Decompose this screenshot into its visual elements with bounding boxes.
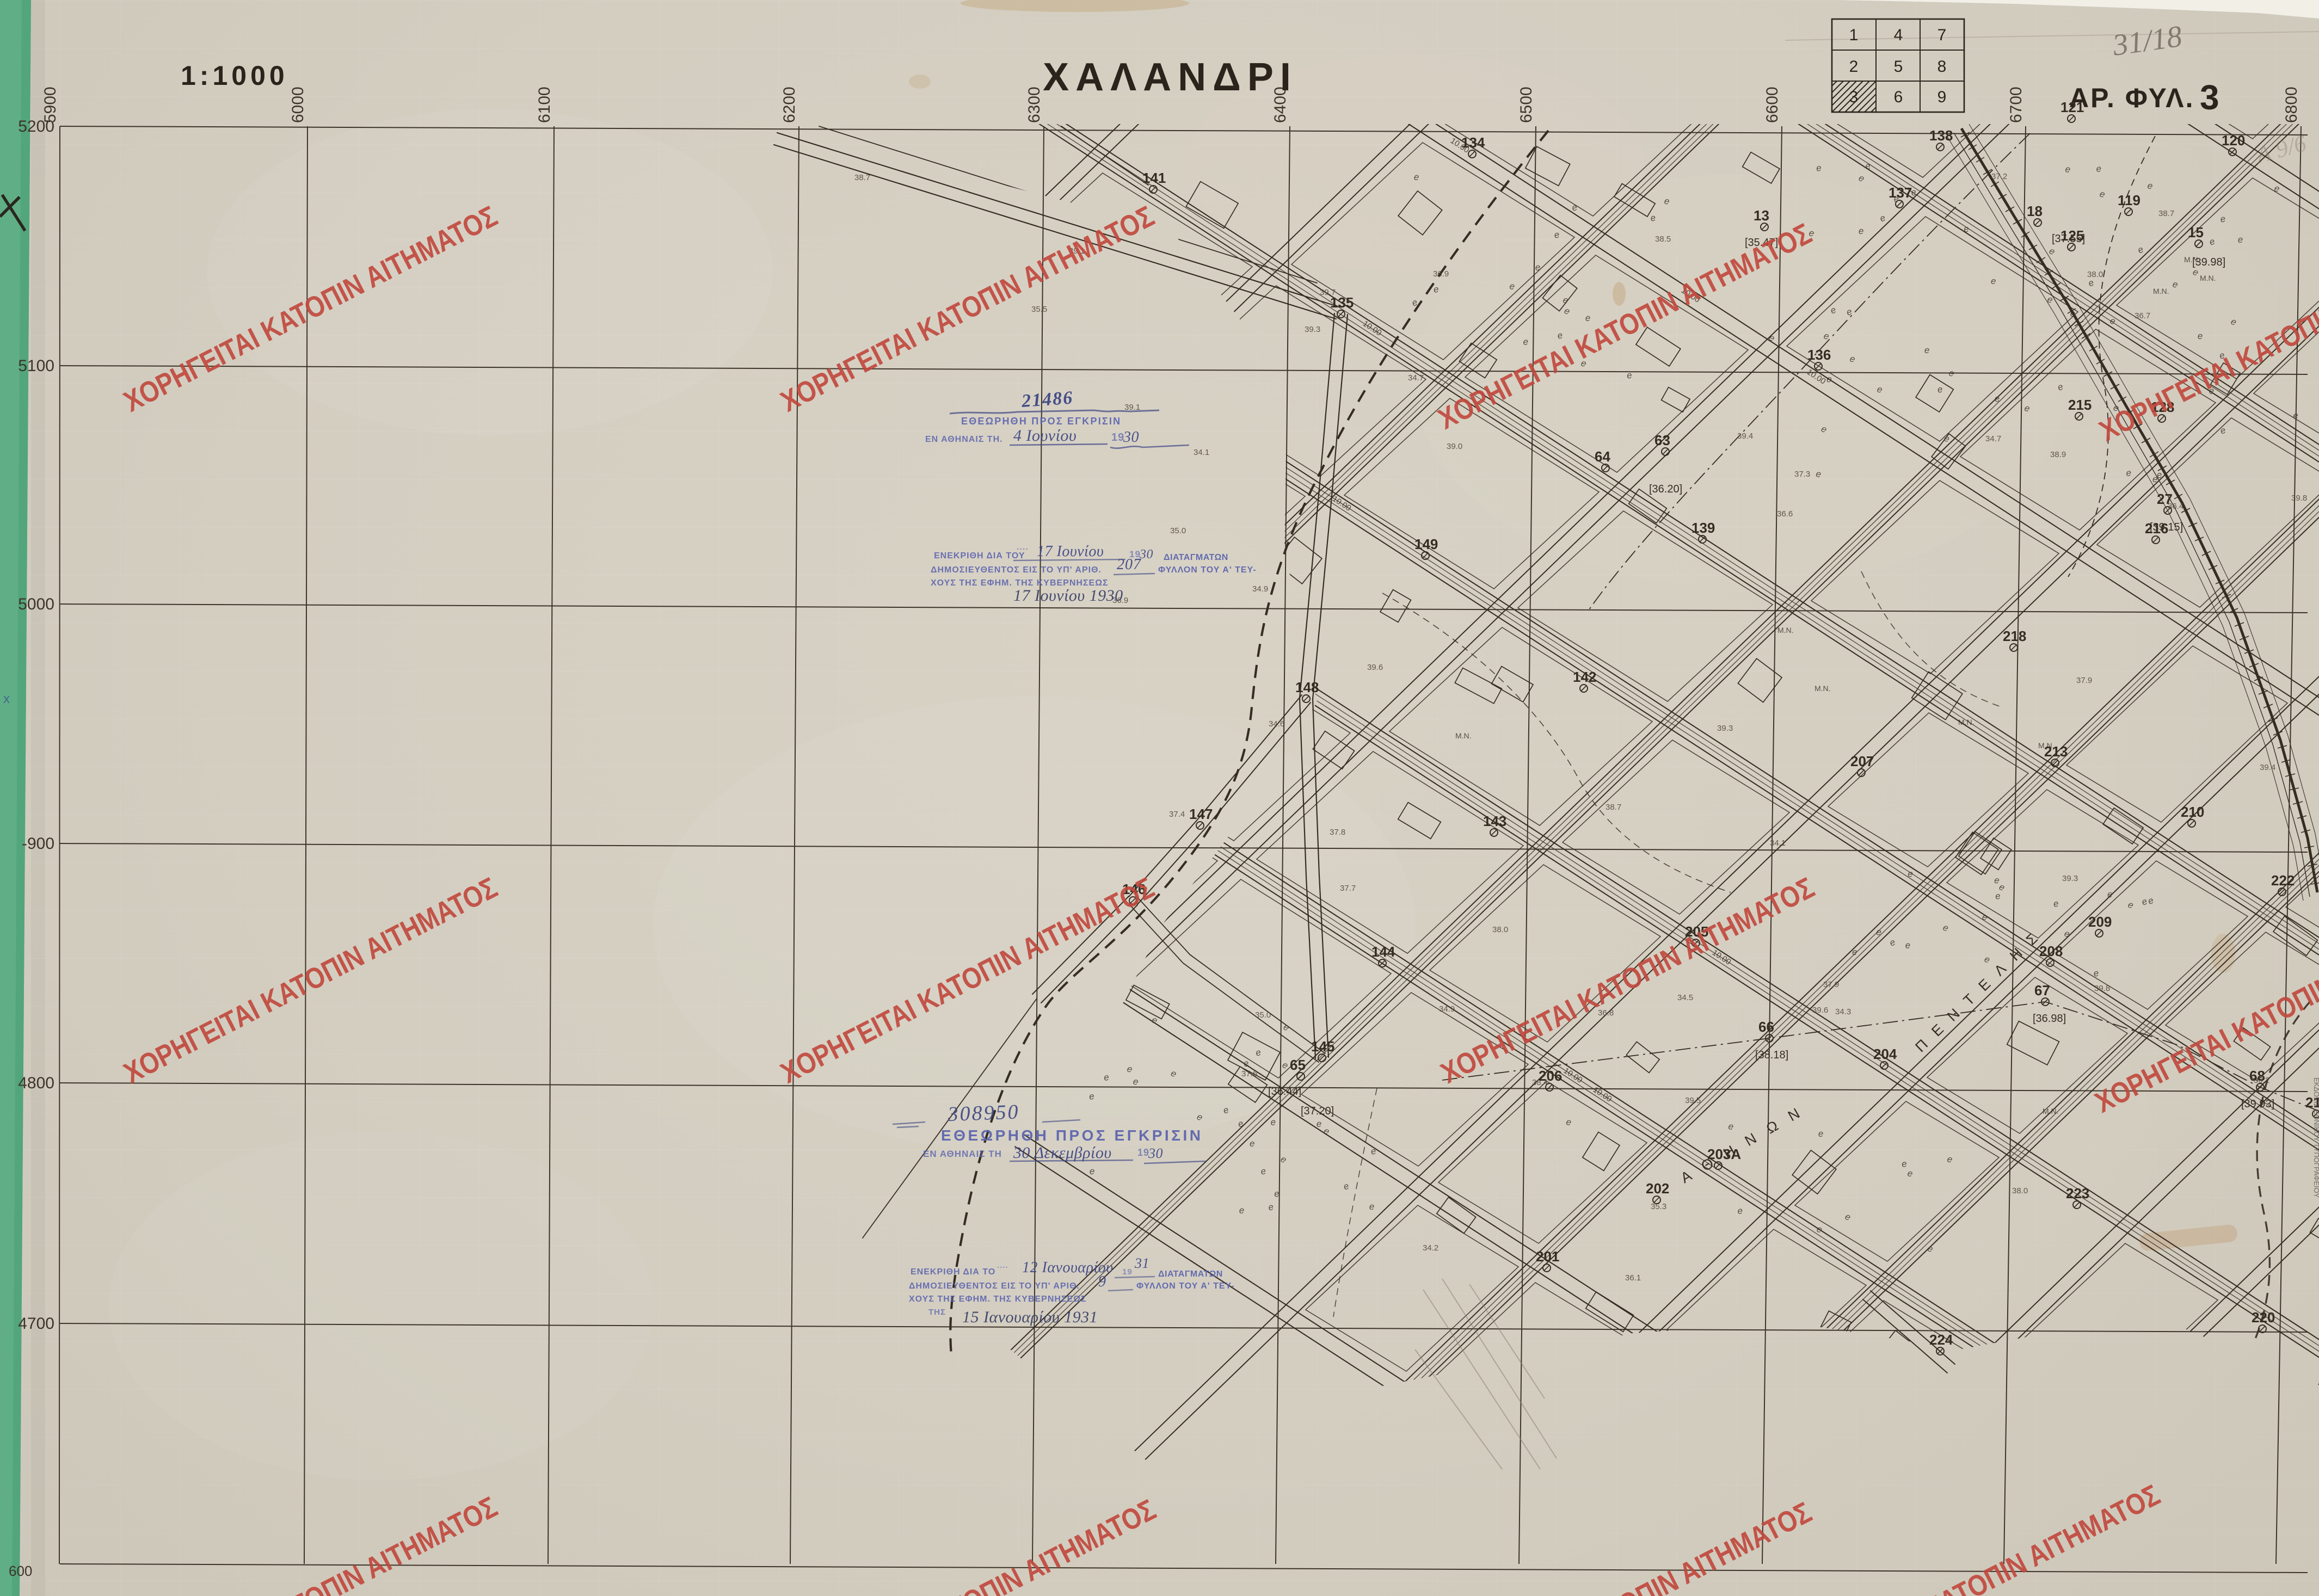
svg-text:[37.55]: [37.55] <box>2052 233 2085 245</box>
svg-text:e: e <box>1342 1181 1351 1192</box>
svg-text:37.9: 37.9 <box>2076 676 2092 685</box>
svg-text:39.3: 39.3 <box>1305 325 1320 334</box>
svg-text:e: e <box>1876 927 1882 938</box>
svg-text:8: 8 <box>1937 58 1947 76</box>
svg-text:ΧΟΡΗΓΕΙΤΑΙ ΚΑΤΟΠΙΝ ΑΙΤΗΜΑΤΟΣ: ΧΟΡΗΓΕΙΤΑΙ ΚΑΤΟΠΙΝ ΑΙΤΗΜΑΤΟΣ <box>777 1493 1161 1596</box>
svg-text:ΧΟΥΣ ΤΗΣ ΕΦΗΜ. ΤΗΣ ΚΥΒΕΡΝΗΣΕΩΣ: ΧΟΥΣ ΤΗΣ ΕΦΗΜ. ΤΗΣ ΚΥΒΕΡΝΗΣΕΩΣ <box>909 1295 1087 1304</box>
svg-text:38.0: 38.0 <box>1492 925 1508 934</box>
svg-text:e: e <box>1267 1201 1275 1213</box>
svg-text:17 Ιουνίου: 17 Ιουνίου <box>1037 543 1104 560</box>
svg-text:e: e <box>2063 928 2071 940</box>
svg-text:15 Ιανουαρίου 1931: 15 Ιανουαρίου 1931 <box>962 1308 1098 1326</box>
svg-text:67: 67 <box>2034 982 2050 999</box>
svg-text:e: e <box>2127 899 2135 911</box>
svg-text:39.8: 39.8 <box>2094 984 2110 993</box>
svg-text:38.0: 38.0 <box>2087 270 2103 279</box>
svg-text:ΕΝΕΚΡΙΘΗ ΔΙΑ ΤΟ: ΕΝΕΚΡΙΘΗ ΔΙΑ ΤΟ <box>911 1267 995 1277</box>
svg-text:120: 120 <box>2222 132 2245 149</box>
svg-text:34.7: 34.7 <box>1408 373 1424 383</box>
svg-text:e: e <box>2219 425 2228 436</box>
svg-text:e: e <box>2172 279 2179 290</box>
svg-text:e: e <box>2136 244 2145 255</box>
svg-text:M.N.: M.N. <box>2043 1107 2059 1116</box>
svg-text:19: 19 <box>1111 432 1124 443</box>
svg-text:ΧΑΛΑΝΔΡΙ: ΧΑΛΑΝΔΡΙ <box>1043 56 1297 99</box>
svg-text:6: 6 <box>1894 88 1903 106</box>
svg-text:19: 19 <box>1137 1147 1149 1158</box>
svg-text:M.N.: M.N. <box>1777 626 1794 634</box>
svg-text:63: 63 <box>1654 432 1670 448</box>
svg-text:34.1: 34.1 <box>1194 448 1209 457</box>
svg-text:38.7: 38.7 <box>2158 209 2174 218</box>
svg-text:[39.93]: [39.93] <box>2241 1098 2274 1110</box>
svg-text:138: 138 <box>1929 127 1953 144</box>
svg-text:39.3: 39.3 <box>2062 874 2078 883</box>
svg-text:34.9: 34.9 <box>1439 1005 1455 1014</box>
svg-text:e: e <box>1413 172 1419 182</box>
svg-text:121: 121 <box>2060 99 2084 115</box>
svg-text:e: e <box>2292 410 2299 421</box>
svg-text:e: e <box>1737 1205 1743 1216</box>
svg-text:34.1: 34.1 <box>1770 839 1786 848</box>
svg-text:21486: 21486 <box>1020 387 1074 411</box>
svg-text:36.7: 36.7 <box>2135 311 2150 321</box>
svg-text:ΦΥΛΛΟΝ ΤΟΥ Α' ΤΕΥ-: ΦΥΛΛΟΝ ΤΟΥ Α' ΤΕΥ- <box>1136 1281 1235 1291</box>
svg-text:M.N.: M.N. <box>1958 718 1974 726</box>
svg-text:ΦΥΛΛΟΝ ΤΟΥ Α' ΤΕΥ-: ΦΥΛΛΟΝ ΤΟΥ Α' ΤΕΥ- <box>1158 565 1257 575</box>
svg-text:e: e <box>2237 235 2243 245</box>
svg-text:38.5: 38.5 <box>1655 235 1671 244</box>
svg-text:218: 218 <box>2003 628 2026 644</box>
svg-text:31: 31 <box>1134 1255 1149 1271</box>
svg-text:e: e <box>1995 891 2001 902</box>
svg-text:149: 149 <box>1414 536 1438 552</box>
svg-text:[38.18]: [38.18] <box>1755 1049 1788 1061</box>
svg-text:39.5: 39.5 <box>1685 1096 1701 1105</box>
svg-text:64: 64 <box>1595 448 1610 465</box>
svg-text:143: 143 <box>1483 813 1506 829</box>
svg-text:36.1: 36.1 <box>1625 1273 1641 1283</box>
svg-text:x: x <box>3 692 10 706</box>
svg-text:119: 119 <box>2118 192 2140 208</box>
svg-text:e: e <box>2273 183 2280 194</box>
svg-text:38.0: 38.0 <box>2012 1186 2028 1196</box>
svg-text:e: e <box>1818 1129 1823 1139</box>
svg-text:M.N.: M.N. <box>1814 684 1831 693</box>
svg-text:66: 66 <box>1758 1019 1774 1035</box>
svg-text:e: e <box>2047 245 2056 257</box>
svg-text:19: 19 <box>1122 1267 1133 1277</box>
svg-text:38.9: 38.9 <box>2050 450 2066 459</box>
svg-text:35.0: 35.0 <box>1255 1010 1271 1020</box>
svg-text:[36.44]: [36.44] <box>1268 1086 1301 1098</box>
svg-text:e: e <box>2198 331 2203 341</box>
svg-text:e: e <box>2126 467 2132 478</box>
svg-text:e: e <box>1963 224 1970 235</box>
svg-text:e: e <box>1908 868 1914 879</box>
svg-text:e: e <box>2107 889 2113 899</box>
svg-text:2: 2 <box>1849 58 1859 76</box>
svg-text:e: e <box>2070 309 2075 319</box>
svg-text:36.9: 36.9 <box>1433 269 1449 279</box>
svg-text:141: 141 <box>1142 170 1166 186</box>
svg-text:18: 18 <box>2027 203 2043 219</box>
svg-text:ΕΘΕΩΡΗΘΗ ΠΡΟΣ ΕΓΚΡΙΣΙΝ: ΕΘΕΩΡΗΘΗ ΠΡΟΣ ΕΓΚΡΙΣΙΝ <box>961 416 1121 427</box>
svg-text:e: e <box>2146 180 2154 191</box>
svg-text:6200: 6200 <box>780 87 798 123</box>
svg-text:37.3: 37.3 <box>1794 470 1810 479</box>
svg-text:36.6: 36.6 <box>1777 509 1793 519</box>
svg-text:ΧΟΡΗΓΕΙΤΑΙ ΚΑΤΟΠΙΝ ΑΙΤΗΜΑΤΟΣ: ΧΟΡΗΓΕΙΤΑΙ ΚΑΤΟΠΙΝ ΑΙΤΗΜΑΤΟΣ <box>776 200 1159 418</box>
svg-text:e: e <box>1585 313 1590 323</box>
svg-text:5000: 5000 <box>18 595 54 613</box>
svg-text:e: e <box>2208 236 2217 248</box>
svg-text:M.N.: M.N. <box>2153 287 2169 295</box>
svg-text:68: 68 <box>2249 1068 2265 1084</box>
svg-text:e: e <box>2230 316 2238 328</box>
svg-text:202: 202 <box>1646 1180 1669 1197</box>
svg-text:e: e <box>1826 374 1832 384</box>
svg-text:220: 220 <box>2252 1309 2275 1326</box>
svg-text:37.8: 37.8 <box>1330 828 1345 837</box>
svg-text:5100: 5100 <box>18 357 54 375</box>
svg-text:ΧΟΡΗΓΕΙΤΑΙ ΚΑΤΟΠΙΝ ΑΙΤΗΜΑΤΟΣ: ΧΟΡΗΓΕΙΤΑΙ ΚΑΤΟΠΙΝ ΑΙΤΗΜΑΤΟΣ <box>119 871 502 1090</box>
svg-text:34.9: 34.9 <box>1252 584 1268 594</box>
svg-text:ΔΙΑΤΑΓΜΑΤΩΝ: ΔΙΑΤΑΓΜΑΤΩΝ <box>1158 1270 1223 1279</box>
svg-text:e: e <box>1857 172 1866 184</box>
svg-text:e: e <box>1237 1118 1245 1130</box>
svg-text:e: e <box>2046 294 2053 305</box>
svg-text:34.2: 34.2 <box>1423 1243 1438 1253</box>
svg-text:37.6: 37.6 <box>1241 1069 1257 1079</box>
svg-text:ΧΟΡΗΓΕΙΤΑΙ ΚΑΤΟΠΙΝ ΑΙΤΗΜΑΤΟΣ: ΧΟΡΗΓΕΙΤΑΙ ΚΑΤΟΠΙΝ ΑΙΤΗΜΑΤΟΣ <box>1433 1496 1817 1596</box>
svg-text:e: e <box>1316 1119 1321 1129</box>
svg-text:6500: 6500 <box>1517 87 1535 123</box>
svg-text:e: e <box>1523 336 1529 347</box>
svg-text:[36.98]: [36.98] <box>2033 1013 2066 1025</box>
svg-text:e: e <box>1239 1205 1244 1216</box>
svg-text:1:1000: 1:1000 <box>181 60 288 91</box>
svg-text:6000: 6000 <box>289 87 307 123</box>
svg-text:-900: -900 <box>22 835 54 853</box>
svg-text:e: e <box>2096 163 2102 174</box>
svg-text:37.4: 37.4 <box>1169 810 1185 819</box>
svg-text:30: 30 <box>1148 1145 1163 1161</box>
svg-text:ΔΗΜΟΣΙΕΥΘΕΝΤΟΣ ΕΙΣ ΤΟ ΥΠ' ΑΡΙΘ: ΔΗΜΟΣΙΕΥΘΕΝΤΟΣ ΕΙΣ ΤΟ ΥΠ' ΑΡΙΘ. <box>931 565 1102 575</box>
svg-text:5200: 5200 <box>18 118 54 135</box>
svg-text:1: 1 <box>1849 26 1859 44</box>
svg-text:142: 142 <box>1573 669 1596 685</box>
svg-text:308950: 308950 <box>947 1100 1020 1126</box>
svg-text:e: e <box>1322 1125 1331 1137</box>
svg-text:39.0: 39.0 <box>1447 442 1462 451</box>
svg-text:e: e <box>1991 276 1996 286</box>
svg-text:35.0: 35.0 <box>1170 526 1186 535</box>
svg-text:6700: 6700 <box>2007 87 2025 123</box>
svg-text:37.7: 37.7 <box>1340 884 1356 893</box>
svg-text:4800: 4800 <box>18 1074 54 1092</box>
svg-text:65: 65 <box>1290 1057 1306 1073</box>
svg-text:222: 222 <box>2271 872 2295 889</box>
svg-text:ΕΝΕΚΡΙΘΗ ΔΙΑ ΤΟΥ: ΕΝΕΚΡΙΘΗ ΔΙΑ ΤΟΥ <box>934 551 1025 560</box>
svg-text:13: 13 <box>1754 207 1769 224</box>
svg-text:4 Ιουνίου: 4 Ιουνίου <box>1013 427 1077 445</box>
svg-text:5: 5 <box>1894 58 1903 76</box>
svg-text:37.2: 37.2 <box>1991 172 2007 181</box>
svg-text:27: 27 <box>2157 491 2173 507</box>
svg-text:34.3: 34.3 <box>1835 1007 1851 1016</box>
svg-text:e: e <box>2099 188 2106 200</box>
svg-text:4700: 4700 <box>18 1315 54 1333</box>
svg-text:35.5: 35.5 <box>1031 305 1047 314</box>
svg-text:6300: 6300 <box>1025 87 1043 123</box>
svg-text:M.N.: M.N. <box>1455 731 1472 740</box>
svg-text:e: e <box>1888 936 1897 948</box>
svg-text:ΧΟΡΗΓΕΙΤΑΙ ΚΑΤΟΠΙΝ ΑΙΤΗΜΑΤΟΣ: ΧΟΡΗΓΕΙΤΑΙ ΚΑΤΟΠΙΝ ΑΙΤΗΜΑΤΟΣ <box>1781 1478 2165 1596</box>
svg-text:e: e <box>1942 922 1949 934</box>
svg-text:34.6: 34.6 <box>1269 719 1284 729</box>
svg-text:600: 600 <box>9 1563 32 1579</box>
svg-text:145: 145 <box>1311 1038 1334 1055</box>
svg-text:6100: 6100 <box>536 87 553 123</box>
svg-text:206: 206 <box>1539 1068 1562 1084</box>
svg-text:6800: 6800 <box>2283 87 2300 123</box>
svg-text:ΑΡ. ΦΥΛ.: ΑΡ. ΦΥΛ. <box>2069 83 2195 113</box>
svg-text:e: e <box>1816 163 1822 174</box>
svg-text:e: e <box>2065 164 2071 175</box>
svg-text:M.N.: M.N. <box>2200 274 2216 282</box>
svg-text:ΕΝ ΑΘΗΝΑΙΣ ΤΗ.: ΕΝ ΑΘΗΝΑΙΣ ΤΗ. <box>925 435 1003 444</box>
svg-text:[36.20]: [36.20] <box>1649 483 1682 495</box>
svg-text:39.8: 39.8 <box>2291 494 2307 503</box>
svg-text:39.4: 39.4 <box>2260 763 2275 772</box>
svg-text:e: e <box>1905 940 1911 951</box>
svg-text:224: 224 <box>1929 1332 1953 1348</box>
svg-text:209: 209 <box>2088 914 2112 930</box>
svg-text:9: 9 <box>1098 1273 1106 1290</box>
svg-text:[39.98]: [39.98] <box>2192 256 2225 268</box>
svg-text:201: 201 <box>1536 1248 1559 1265</box>
svg-text:38.7: 38.7 <box>1606 803 1621 812</box>
svg-text:ΕΘΕΩΡΗΘΗ ΠΡΟΣ ΕΓΚΡΙΣΙΝ: ΕΘΕΩΡΗΘΗ ΠΡΟΣ ΕΓΚΡΙΣΙΝ <box>941 1127 1203 1144</box>
svg-text:135: 135 <box>1330 294 1354 311</box>
svg-text:137: 137 <box>1889 184 1912 201</box>
svg-text:210: 210 <box>2181 804 2204 820</box>
svg-text:144: 144 <box>1371 944 1395 960</box>
svg-text:31/18: 31/18 <box>2110 20 2184 63</box>
svg-text:e: e <box>1370 1145 1377 1157</box>
svg-text:213: 213 <box>2044 743 2068 760</box>
svg-text:e: e <box>1535 262 1540 273</box>
svg-text:30 Δεκεμβρίου: 30 Δεκεμβρίου <box>1013 1144 1112 1162</box>
svg-text:39.3: 39.3 <box>1717 724 1733 733</box>
svg-text:[37.20]: [37.20] <box>1301 1105 1334 1117</box>
svg-text:30: 30 <box>1123 429 1139 446</box>
svg-text:38.7: 38.7 <box>854 173 870 182</box>
svg-text:39.6: 39.6 <box>1367 663 1383 672</box>
svg-text:147: 147 <box>1189 806 1213 822</box>
svg-text:e: e <box>1864 161 1872 172</box>
svg-text:e: e <box>2109 316 2117 327</box>
svg-text:e: e <box>1280 1154 1288 1165</box>
svg-text:ΕΚΔΟΣΙΣ ΕΘΝΙΚΟΥ ΤΥΠΟΓΡΑΦΕΙΟΥ: ΕΚΔΟΣΙΣ ΕΘΝΙΚΟΥ ΤΥΠΟΓΡΑΦΕΙΟΥ <box>2312 1077 2319 1198</box>
svg-text:e: e <box>2219 213 2226 225</box>
svg-text:139: 139 <box>1691 520 1715 536</box>
svg-text:e: e <box>1270 1117 1276 1127</box>
svg-text:e: e <box>2152 474 2158 484</box>
svg-text:4: 4 <box>1894 26 1903 44</box>
svg-text:e: e <box>1859 226 1864 236</box>
svg-text:e: e <box>1090 1166 1095 1176</box>
svg-text:ΔΗΜΟΣΙΕΥΘΕΝΤΟΣ ΕΙΣ ΤΟ ΥΠ' ΑΡΙΘ: ΔΗΜΟΣΙΕΥΘΕΝΤΟΣ ΕΙΣ ΤΟ ΥΠ' ΑΡΙΘ. <box>909 1281 1080 1291</box>
svg-text:207: 207 <box>1850 753 1874 769</box>
svg-text:215: 215 <box>2068 397 2092 413</box>
svg-text:e: e <box>1259 1166 1267 1177</box>
svg-text:ΧΟΡΗΓΕΙΤΑΙ ΚΑΤΟΠΙΝ ΑΙΤΗΜΑΤΟΣ: ΧΟΡΗΓΕΙΤΑΙ ΚΑΤΟΠΙΝ ΑΙΤΗΜΑΤΟΣ <box>119 1490 502 1596</box>
svg-text:e: e <box>1410 297 1419 309</box>
svg-text:....: .... <box>997 1261 1008 1270</box>
svg-text:3: 3 <box>2200 78 2219 117</box>
svg-text:9: 9 <box>1937 88 1947 106</box>
svg-text:e: e <box>1983 954 1991 965</box>
svg-text:ΤΗΣ: ΤΗΣ <box>928 1308 946 1317</box>
svg-text:34.5: 34.5 <box>1677 993 1693 1002</box>
svg-text:223: 223 <box>2066 1185 2089 1201</box>
svg-text:e: e <box>1432 284 1440 295</box>
svg-text:e: e <box>1994 875 2000 885</box>
svg-text:148: 148 <box>1295 679 1319 695</box>
svg-text:34.7: 34.7 <box>1985 434 2001 443</box>
svg-text:207: 207 <box>1117 556 1141 573</box>
svg-text:39.6: 39.6 <box>1812 1006 1828 1015</box>
svg-text:[39.15]: [39.15] <box>2150 521 2183 533</box>
svg-text:e: e <box>1924 345 1930 355</box>
svg-text:....: .... <box>1017 543 1029 552</box>
svg-text:17 Ιουνίου 1930: 17 Ιουνίου 1930 <box>1013 587 1123 605</box>
svg-text:136: 136 <box>1807 347 1831 363</box>
svg-text:e: e <box>2052 898 2059 909</box>
svg-text:ΔΙΑΤΑΓΜΑΤΩΝ: ΔΙΑΤΑΓΜΑΤΩΝ <box>1164 553 1228 562</box>
svg-text:e: e <box>2093 968 2100 979</box>
svg-text:39.4: 39.4 <box>1737 432 1753 441</box>
svg-text:ΕΝ ΑΘΗΝΑΙΣ ΤΗ: ΕΝ ΑΘΗΝΑΙΣ ΤΗ <box>923 1149 1002 1159</box>
svg-text:e: e <box>1369 1201 1374 1212</box>
svg-text:37.9: 37.9 <box>1823 980 1839 989</box>
svg-text:e: e <box>1852 947 1857 957</box>
svg-text:7: 7 <box>1937 26 1947 44</box>
svg-text:204: 204 <box>1873 1046 1897 1062</box>
svg-text:208: 208 <box>2039 943 2063 959</box>
svg-text:6600: 6600 <box>1763 87 1781 123</box>
svg-text:e: e <box>1250 1138 1254 1149</box>
svg-text:15: 15 <box>2188 224 2204 241</box>
